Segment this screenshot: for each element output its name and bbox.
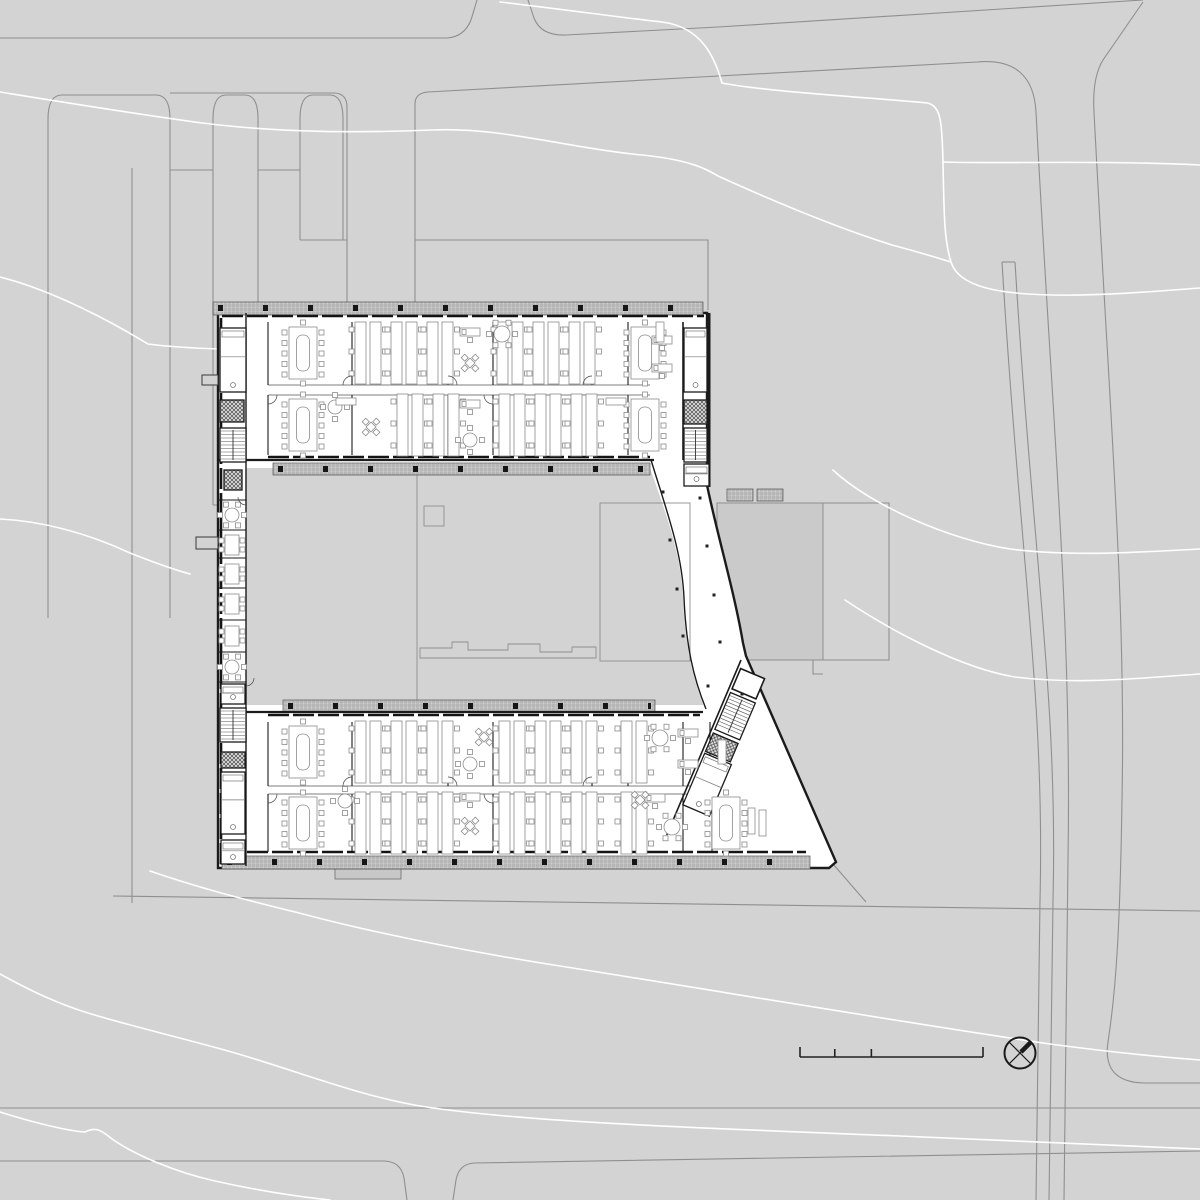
canopy-band — [222, 856, 810, 869]
site-plan-drawing — [0, 0, 1200, 1200]
south-extension — [335, 869, 401, 879]
courtyard-ground — [246, 468, 703, 705]
facade-stub — [196, 537, 218, 549]
canopy-band — [213, 302, 703, 315]
column — [713, 594, 716, 597]
elevator — [224, 470, 242, 490]
canopy-band — [757, 489, 783, 501]
column — [682, 635, 685, 638]
column — [676, 588, 679, 591]
elevator — [220, 400, 244, 422]
site-plan-page — [0, 0, 1200, 1200]
facade-stub — [202, 375, 218, 385]
wc-room — [221, 840, 245, 864]
column — [707, 685, 710, 688]
canopy-band — [727, 489, 753, 501]
inner-courtyard — [246, 468, 703, 705]
column — [662, 491, 665, 494]
column — [699, 497, 702, 500]
column — [706, 545, 709, 548]
elevator — [221, 752, 245, 768]
column — [719, 641, 722, 644]
column — [741, 693, 744, 696]
column — [669, 539, 672, 542]
elevator — [684, 400, 707, 424]
